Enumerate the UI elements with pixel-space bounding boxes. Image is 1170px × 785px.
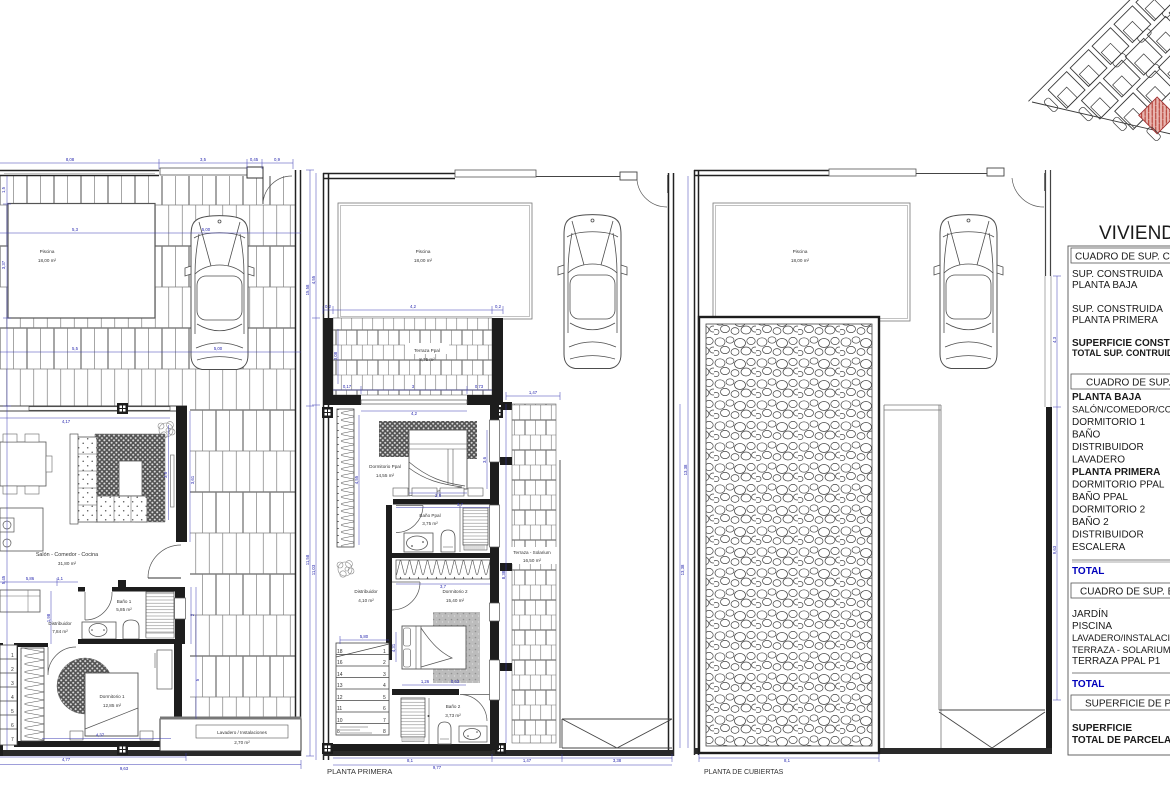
svg-text:8,38: 8,38: [501, 570, 506, 579]
svg-text:PLANTA BAJA: PLANTA BAJA: [1072, 392, 1141, 403]
svg-text:TERRAZA - SOLARIUM P1: TERRAZA - SOLARIUM P1: [1072, 645, 1170, 655]
svg-text:8,75 m²: 8,75 m²: [419, 357, 435, 362]
svg-text:31,80 m²: 31,80 m²: [58, 561, 77, 566]
svg-text:4: 4: [11, 695, 14, 701]
svg-text:4,17: 4,17: [62, 419, 71, 424]
svg-text:7,84 m²: 7,84 m²: [52, 629, 68, 634]
svg-text:PLANTA BAJA: PLANTA BAJA: [1072, 280, 1138, 291]
svg-text:BAÑO: BAÑO: [1072, 428, 1101, 441]
svg-text:Terraza Ppal: Terraza Ppal: [414, 348, 440, 353]
svg-text:4: 4: [383, 683, 386, 689]
svg-text:6: 6: [383, 706, 386, 712]
svg-text:1,47: 1,47: [529, 390, 538, 395]
svg-text:4,31: 4,31: [391, 643, 396, 652]
svg-text:TOTAL: TOTAL: [1072, 679, 1104, 690]
svg-text:DISTRIBUIDOR: DISTRIBUIDOR: [1072, 442, 1144, 453]
svg-text:Terraza - Solarium: Terraza - Solarium: [513, 550, 551, 555]
svg-text:9,63: 9,63: [120, 766, 129, 771]
svg-text:SALÓN/COMEDOR/COCINA: SALÓN/COMEDOR/COCINA: [1072, 404, 1170, 415]
svg-text:3,5: 3,5: [200, 157, 207, 162]
svg-text:0,17: 0,17: [343, 384, 352, 389]
svg-text:3,6: 3,6: [163, 471, 168, 478]
svg-text:JARDÍN: JARDÍN: [1072, 607, 1108, 620]
svg-text:SUP. CONSTRUIDA: SUP. CONSTRUIDA: [1072, 304, 1163, 315]
svg-text:3,38: 3,38: [613, 758, 622, 763]
svg-text:Piscina: Piscina: [416, 249, 431, 254]
svg-text:18,00 m²: 18,00 m²: [38, 258, 57, 263]
svg-text:PLANTA PRIMERA: PLANTA PRIMERA: [327, 767, 393, 776]
svg-text:15,40 m²: 15,40 m²: [446, 598, 465, 603]
svg-text:Piscina: Piscina: [793, 249, 808, 254]
svg-text:6: 6: [11, 723, 14, 729]
svg-text:3,08: 3,08: [333, 351, 338, 360]
svg-text:3,37: 3,37: [1, 260, 6, 269]
svg-text:16,50 m²: 16,50 m²: [523, 558, 542, 563]
svg-text:7: 7: [383, 718, 386, 724]
svg-text:4,2: 4,2: [411, 411, 418, 416]
svg-text:1,1: 1,1: [57, 576, 64, 581]
svg-text:11,58: 11,58: [305, 554, 310, 565]
svg-text:16: 16: [337, 660, 343, 666]
svg-text:13,38: 13,38: [680, 564, 685, 575]
svg-text:8,1: 8,1: [407, 758, 414, 763]
svg-text:5,3: 5,3: [72, 227, 79, 232]
svg-text:0,45: 0,45: [250, 157, 259, 162]
svg-text:9,77: 9,77: [433, 765, 442, 770]
svg-text:5: 5: [383, 695, 386, 701]
svg-text:VIVIEND: VIVIEND: [1099, 223, 1170, 244]
svg-text:Lavadero / Instalaciones: Lavadero / Instalaciones: [217, 730, 268, 735]
svg-text:8,08: 8,08: [66, 157, 75, 162]
svg-text:Baño 1: Baño 1: [117, 599, 132, 604]
svg-text:10: 10: [337, 718, 343, 724]
svg-text:TOTAL SUP. CONTRUIDA: TOTAL SUP. CONTRUIDA: [1072, 348, 1170, 358]
svg-text:2: 2: [383, 660, 386, 666]
svg-text:4,10 m²: 4,10 m²: [358, 598, 374, 603]
svg-text:BAÑO PPAL: BAÑO PPAL: [1072, 490, 1128, 503]
svg-text:PLANTA PRIMERA: PLANTA PRIMERA: [1072, 315, 1158, 326]
svg-text:5,5: 5,5: [72, 346, 79, 351]
svg-text:TOTAL DE PARCELA: TOTAL DE PARCELA: [1072, 735, 1170, 746]
svg-text:TERRAZA PPAL P1: TERRAZA PPAL P1: [1072, 656, 1161, 667]
svg-text:3,7: 3,7: [457, 502, 464, 507]
svg-text:0,73: 0,73: [475, 384, 484, 389]
svg-text:1: 1: [11, 653, 14, 659]
svg-text:4,55: 4,55: [311, 275, 316, 284]
svg-text:0,9: 0,9: [274, 157, 281, 162]
svg-text:ESCALERA: ESCALERA: [1072, 542, 1126, 553]
svg-text:3,75 m²: 3,75 m²: [422, 521, 438, 526]
svg-text:Baño 2: Baño 2: [446, 704, 461, 709]
svg-text:14: 14: [337, 672, 343, 678]
svg-text:5,00: 5,00: [202, 227, 211, 232]
svg-text:5: 5: [11, 709, 14, 715]
svg-text:CUADRO DE SUP. E: CUADRO DE SUP. E: [1080, 587, 1170, 598]
svg-text:13: 13: [337, 683, 343, 689]
svg-text:SUPERFICIE: SUPERFICIE: [1072, 723, 1132, 734]
svg-text:CUADRO DE SUP. CO: CUADRO DE SUP. CO: [1075, 252, 1170, 263]
svg-text:DISTRIBUIDOR: DISTRIBUIDOR: [1072, 530, 1144, 541]
svg-text:2,70 m²: 2,70 m²: [234, 740, 250, 745]
svg-text:4,3: 4,3: [1052, 336, 1057, 343]
svg-text:14,55 m²: 14,55 m²: [376, 473, 395, 478]
svg-text:5,45: 5,45: [1, 575, 6, 584]
svg-text:Dormitorio 2: Dormitorio 2: [442, 589, 467, 594]
svg-text:8: 8: [337, 729, 340, 735]
svg-text:1,47: 1,47: [523, 758, 532, 763]
svg-text:4,37: 4,37: [96, 733, 105, 738]
svg-text:12: 12: [337, 695, 343, 701]
svg-text:1: 1: [383, 649, 386, 655]
svg-text:0,63: 0,63: [451, 679, 460, 684]
svg-text:LAVADERO: LAVADERO: [1072, 455, 1125, 466]
svg-text:13,38: 13,38: [683, 464, 688, 475]
svg-text:3,7: 3,7: [440, 584, 447, 589]
svg-text:Piscina: Piscina: [40, 249, 55, 254]
svg-text:3,6: 3,6: [482, 456, 487, 463]
svg-text:5,80: 5,80: [360, 634, 369, 639]
svg-text:SUPERFICIE DE P: SUPERFICIE DE P: [1085, 699, 1170, 710]
svg-text:DORMITORIO 1: DORMITORIO 1: [1072, 417, 1146, 428]
svg-text:1,26: 1,26: [421, 679, 430, 684]
svg-text:Salón - Comedor - Cocina: Salón - Comedor - Cocina: [36, 552, 98, 558]
svg-text:LAVADERO/INSTALACION: LAVADERO/INSTALACION: [1072, 633, 1170, 643]
svg-text:18: 18: [337, 649, 343, 655]
svg-text:DORMITORIO 2: DORMITORIO 2: [1072, 505, 1146, 516]
svg-text:7: 7: [11, 737, 14, 743]
svg-text:Distribuidor: Distribuidor: [354, 589, 378, 594]
svg-text:4,77: 4,77: [62, 757, 71, 762]
svg-text:PLANTA PRIMERA: PLANTA PRIMERA: [1072, 467, 1160, 478]
svg-text:Distribuidor: Distribuidor: [48, 621, 72, 626]
svg-text:11: 11: [337, 706, 342, 712]
svg-text:5,86: 5,86: [26, 576, 35, 581]
svg-text:2: 2: [11, 667, 14, 673]
svg-text:15,58: 15,58: [305, 284, 310, 295]
svg-text:Baño Ppal: Baño Ppal: [419, 513, 440, 518]
svg-text:3,73 m²: 3,73 m²: [445, 713, 461, 718]
svg-text:2,8: 2,8: [435, 493, 442, 498]
svg-text:0,2: 0,2: [495, 304, 502, 309]
svg-text:5,00: 5,00: [214, 346, 223, 351]
svg-text:3,61: 3,61: [190, 475, 195, 484]
svg-text:BAÑO 2: BAÑO 2: [1072, 515, 1109, 528]
svg-text:4,2: 4,2: [410, 304, 417, 309]
svg-text:3: 3: [383, 672, 386, 678]
svg-text:5,85 m²: 5,85 m²: [116, 607, 132, 612]
svg-text:SUP. CONSTRUIDA: SUP. CONSTRUIDA: [1072, 269, 1163, 280]
svg-text:12,85 m²: 12,85 m²: [103, 703, 122, 708]
svg-text:4,55: 4,55: [354, 475, 359, 484]
svg-text:9,63: 9,63: [1052, 545, 1057, 554]
svg-text:3: 3: [11, 681, 14, 687]
svg-text:8: 8: [383, 729, 386, 735]
svg-text:8,1: 8,1: [784, 758, 791, 763]
svg-text:PLANTA DE CUBIERTAS: PLANTA DE CUBIERTAS: [704, 769, 784, 776]
svg-text:DORMITORIO PPAL: DORMITORIO PPAL: [1072, 480, 1165, 491]
svg-text:0,2: 0,2: [325, 304, 332, 309]
svg-text:CUADRO DE SUP.: CUADRO DE SUP.: [1086, 378, 1170, 389]
svg-text:Dormitorio Ppal: Dormitorio Ppal: [369, 464, 401, 469]
svg-text:11,03: 11,03: [311, 564, 316, 575]
svg-text:1,5: 1,5: [1, 186, 6, 193]
svg-text:TOTAL: TOTAL: [1072, 566, 1104, 577]
svg-text:PISCINA: PISCINA: [1072, 621, 1112, 632]
svg-text:Dormitorio 1: Dormitorio 1: [99, 694, 124, 699]
svg-text:18,00 m²: 18,00 m²: [414, 258, 433, 263]
svg-text:18,00 m²: 18,00 m²: [791, 258, 810, 263]
